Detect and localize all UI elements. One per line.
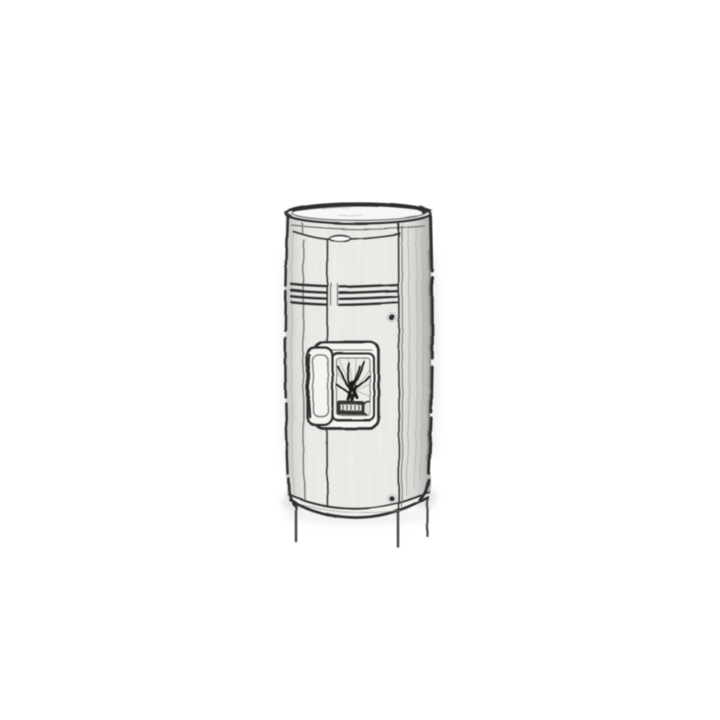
door-handle [307, 348, 333, 425]
burn-pot [337, 402, 366, 415]
stove-body [284, 202, 433, 547]
fire-door [307, 343, 379, 429]
canvas [0, 0, 720, 720]
top-rim [285, 204, 433, 224]
stove-sketch [0, 0, 720, 720]
trim-pull [330, 235, 351, 242]
